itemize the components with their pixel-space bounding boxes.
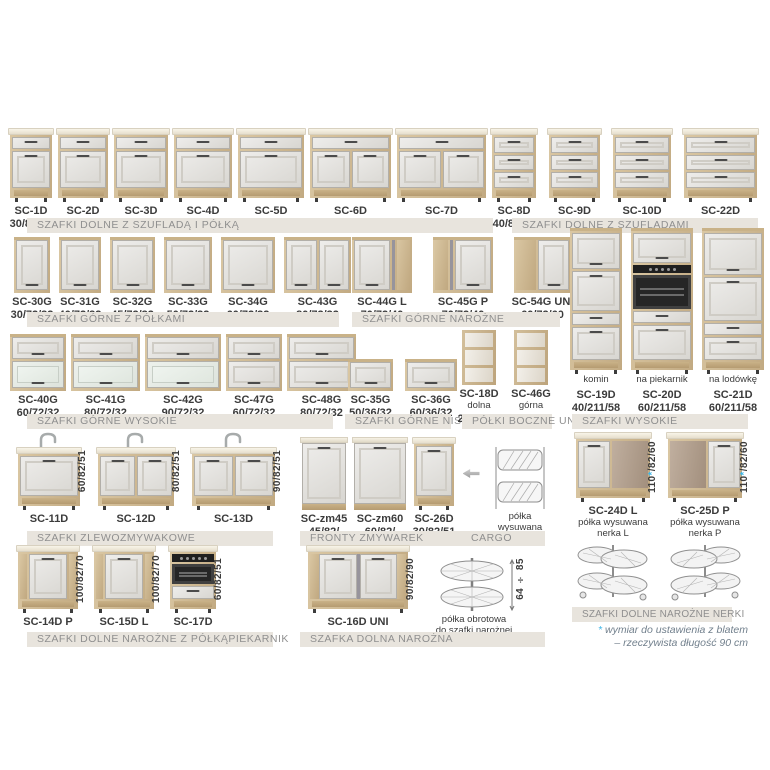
product-code: SC-14D P [23, 616, 73, 628]
product-drawing-area [174, 128, 232, 202]
product-code: SC-35G [351, 394, 391, 406]
handle [727, 327, 740, 329]
cabinet-drawing [164, 237, 212, 293]
countertop [112, 128, 170, 135]
handle [508, 176, 521, 178]
handle [74, 284, 87, 286]
handle [590, 317, 603, 319]
countertop [308, 128, 393, 135]
product-code: SC-5D [254, 205, 287, 217]
handle [656, 329, 669, 331]
kidney-shelf-wrap [575, 545, 651, 606]
oven-window [633, 275, 691, 309]
product-item: SC-1D30/82/51 [10, 128, 52, 230]
handle [636, 159, 649, 161]
cabinet-legs [18, 506, 80, 510]
product-drawing-area [221, 237, 275, 293]
countertop [96, 447, 176, 454]
product-drawing-area: 80/82/51 [92, 432, 180, 510]
countertop [666, 432, 744, 439]
category-band: PÓŁKI BOCZNE UNI [462, 414, 552, 429]
handle [324, 155, 337, 157]
handle [42, 558, 55, 560]
product-item: SC-7D90/82/51 [397, 128, 486, 230]
product-drawing-area [114, 128, 168, 202]
product-drawing-area [238, 128, 304, 202]
vertical-dimension-label: 110*/82/60 [647, 441, 658, 493]
cabinet-legs [174, 198, 232, 202]
section-g10: SC-zm4545/82/SC-zm6060/82/SC-26D30/82/51… [302, 437, 552, 538]
product-drawing-area [287, 334, 356, 391]
product-drawing-area: 90/82/90 [302, 545, 414, 613]
handle [43, 460, 56, 462]
product-drawing-area [310, 128, 391, 202]
product-code: SC-22D [701, 205, 740, 217]
product-drawing-area [684, 128, 757, 202]
cabinet-drawing [613, 128, 671, 202]
product-item: SC-8D40/82/51 [492, 128, 536, 230]
product-code: SC-10D [622, 205, 661, 217]
countertop [395, 128, 488, 135]
kidney-shelf-drawing [667, 545, 743, 601]
category-band-label: SZAFKI DOLNE NAROŻNE Z PÓŁKĄ [37, 632, 228, 647]
product-item: kominSC-19D40/211/58 [570, 228, 622, 414]
section-g11: 110*/82/60SC-24D Lpółka wysuwana nerka L… [570, 432, 748, 606]
product-drawing-area [631, 228, 693, 374]
product-item: 60/82/51SC-11D [12, 432, 86, 525]
handle [590, 331, 603, 333]
handle [25, 155, 38, 157]
corner-cabinet-drawing [18, 545, 78, 613]
handle [727, 281, 740, 283]
product-drawing-area: 110*/82/60 [662, 432, 748, 502]
section-g9: 60/82/51SC-11D80/82/51SC-12D90/82/51SC-1… [12, 432, 281, 525]
product-code: SC-17D [173, 616, 212, 628]
product-drawing-area [226, 334, 282, 391]
product-code: SC-1D [14, 205, 47, 217]
cabinet-drawing [10, 334, 66, 391]
category-band: SZAFKI DOLNE NAROŻNE NERKI [572, 607, 732, 622]
product-code: SC-20D [642, 389, 681, 401]
product-drawing-area [164, 237, 212, 293]
tall-oven-cabinet-drawing [631, 228, 693, 374]
vertical-dimension-label: 80/82/51 [171, 450, 182, 492]
section-g8: kominSC-19D40/211/58na piekarnikSC-20D60… [570, 228, 764, 414]
cabinet-legs [192, 506, 275, 510]
kidney-shelf-wrap [667, 545, 743, 606]
corner-cabinet-drawing [94, 545, 154, 613]
category-band: SZAFKI GÓRNE NAROŻNE [352, 312, 560, 327]
product-drawing-area [14, 237, 50, 293]
product-drawing-area [492, 128, 536, 202]
product-drawing-area [354, 437, 406, 510]
product-drawing-area [58, 128, 108, 202]
product-drawing-area [488, 437, 552, 510]
asterisk-marker: * [598, 624, 602, 636]
product-drawing-area [10, 128, 52, 202]
category-band: SZAFKA DOLNA NAROŻNA [300, 632, 545, 647]
vertical-dimension-label: 100/82/70 [151, 555, 162, 603]
product-sublabel: na piekarnik [636, 375, 687, 386]
section-g12: 100/82/70SC-14D P100/82/70SC-15D L60/82/… [12, 545, 222, 628]
product-item: SC-46Ggórna20/72/30 [514, 330, 548, 425]
cabinet-legs [702, 370, 764, 374]
countertop [92, 545, 156, 552]
product-code: SC-54G UNI [512, 296, 574, 308]
product-sublabel: komin [583, 375, 608, 386]
countertop [574, 432, 652, 439]
product-code: SC-13D [214, 513, 253, 525]
handle [135, 141, 148, 143]
cabinet-legs [684, 198, 757, 202]
handle [467, 284, 480, 286]
handle [242, 284, 255, 286]
product-code: SC-19D [576, 389, 615, 401]
handle [248, 353, 261, 355]
sink-cabinet-drawing [18, 432, 80, 510]
countertop [16, 545, 80, 552]
handle [636, 176, 649, 178]
product-code: SC-25D P [680, 505, 730, 517]
product-code: SC-44G L [357, 296, 407, 308]
product-code: SC-30G [12, 296, 52, 308]
section-g7: SC-18Ddolna20/72/56SC-46Ggórna20/72/30 [462, 330, 548, 425]
handle [457, 155, 470, 157]
product-code: SC-zm60 [357, 513, 403, 525]
handle [32, 353, 45, 355]
cabinet-legs [98, 506, 174, 510]
cabinet-drawing [397, 128, 486, 202]
sink-cabinet-drawing [192, 432, 275, 510]
category-band-label: CARGO [471, 531, 512, 546]
catalog-page: SC-1D30/82/51SC-2D40/82/51SC-3D45/82/51S… [0, 0, 770, 770]
dishwasher-front-drawing [354, 437, 406, 510]
cabinet-drawing [348, 359, 393, 391]
countertop [611, 128, 673, 135]
section-g2: SC-8D40/82/51SC-9D50/82/51SC-10D60/82/51… [492, 128, 757, 230]
product-item: SC-41G80/72/32 [71, 334, 140, 419]
arrow-left-icon [463, 469, 480, 478]
product-code: SC-16D UNI [327, 616, 388, 628]
handle [656, 257, 669, 259]
category-band-label: PÓŁKI BOCZNE UNI [472, 414, 579, 429]
product-item: 100/82/70SC-15D L [88, 545, 160, 628]
blind-panel [612, 441, 648, 488]
product-drawing-area [613, 128, 671, 202]
cabinet-drawing [58, 128, 108, 202]
handle [568, 159, 581, 161]
cabinet-legs [492, 198, 536, 202]
handle [182, 284, 195, 286]
handle [588, 445, 601, 447]
countertop [547, 128, 602, 135]
product-item: SC-45G P70/72/40 [433, 237, 493, 321]
product-sublabel: na lodówkę [709, 375, 757, 386]
handle [727, 341, 740, 343]
handle [265, 155, 278, 157]
product-code: SC-12D [116, 513, 155, 525]
product-item: SC-48G80/72/32 [287, 334, 356, 419]
handle [295, 284, 308, 286]
category-band: SZAFKI GÓRNE WYSOKIE [27, 414, 333, 429]
product-item: na lodówkęSC-21D60/211/58 [702, 228, 764, 414]
product-drawing-area [414, 437, 454, 510]
product-item: 110*/82/60SC-24D Lpółka wysuwana nerka L [570, 432, 656, 606]
cabinet-drawing [405, 359, 457, 391]
handle [413, 155, 426, 157]
countertop [56, 128, 110, 135]
carousel-shelf-drawing [432, 557, 516, 613]
cabinet-drawing [71, 334, 140, 391]
product-item: SC-3D45/82/51 [114, 128, 168, 230]
product-code: SC-31G [60, 296, 100, 308]
product-item: SC-35G50/36/32 [348, 334, 393, 419]
handle [197, 141, 210, 143]
product-item: 90/82/90SC-16D UNI [302, 545, 414, 628]
product-item [462, 437, 480, 510]
product-item: SC-44G L70/72/40 [352, 237, 412, 321]
product-code: SC-45G P [438, 296, 488, 308]
product-code: SC-7D [425, 205, 458, 217]
cabinet-legs [570, 370, 622, 374]
product-drawing-area: 100/82/70 [12, 545, 84, 613]
category-band-label: SZAFKI GÓRNE NAROŻNE [362, 312, 504, 327]
product-drawing-area [352, 237, 412, 293]
product-item: SC-47G60/72/32 [226, 334, 282, 419]
handle [714, 176, 727, 178]
product-drawing-area: 64 ÷ 85 [424, 545, 524, 613]
cabinet-legs [10, 198, 52, 202]
product-item: SC-42G90/72/32 [145, 334, 221, 419]
handle [656, 315, 669, 317]
product-code: SC-42G [163, 394, 203, 406]
product-item: SC-33G50/72/32 [164, 237, 212, 321]
product-sublabel: półka wysuwana nerka P [662, 518, 748, 539]
section-g6: SC-35G50/36/32SC-36G60/36/32 [348, 334, 457, 419]
product-sublabel: dolna [467, 401, 490, 412]
product-item: SC-6D80/82/51 [310, 128, 391, 230]
cabinet-drawing [14, 237, 50, 293]
cabinet-legs [18, 609, 78, 613]
faucet-icon [18, 432, 80, 448]
category-band-label: SZAFKI WYSOKIE [582, 414, 678, 429]
footnote-text: – rzeczywista długość 90 cm [614, 637, 748, 649]
handle [714, 159, 727, 161]
cabinet-legs [549, 198, 600, 202]
handle [187, 590, 200, 592]
section-g13: 90/82/90SC-16D UNI64 ÷ 85półka obrotowad… [302, 545, 524, 636]
tall-cabinet-drawing [570, 228, 622, 374]
product-code: SC-26D [414, 513, 453, 525]
cabinet-drawing [514, 237, 571, 293]
product-drawing-area [514, 330, 548, 385]
cargo-cabinet-drawing [414, 437, 454, 510]
product-code: SC-32G [113, 296, 153, 308]
handle [126, 284, 139, 286]
cabinet-legs [397, 198, 486, 202]
handle [327, 284, 340, 286]
product-code: SC-34G [228, 296, 268, 308]
handle [77, 155, 90, 157]
oven-controls [633, 265, 691, 273]
handle [374, 447, 387, 449]
category-band: FRONTY ZMYWAREKCARGO [300, 531, 545, 546]
product-code: SC-11D [30, 513, 69, 525]
product-item: 90/82/51SC-13D [186, 432, 281, 525]
cabinet-drawing [221, 237, 275, 293]
cabinet-drawing [287, 334, 356, 391]
handle [331, 558, 344, 560]
product-item: 60/82/51SC-17D [164, 545, 222, 628]
product-drawing-area [10, 334, 66, 391]
sink-cabinet-drawing [98, 432, 174, 510]
product-item: SC-31G40/72/32 [59, 237, 101, 321]
category-band: SZAFKI GÓRNE Z PÓŁKAMI [27, 312, 339, 327]
handle [568, 176, 581, 178]
product-code: SC-33G [168, 296, 208, 308]
vertical-dimension-label: 110*/82/60 [739, 441, 750, 493]
handle [318, 447, 331, 449]
faucet-icon [98, 432, 174, 448]
product-dimensions: 40/211/58 [572, 402, 620, 414]
product-drawing-area: 60/82/51 [12, 432, 86, 510]
section-g5: SC-40G60/72/32SC-41G80/72/32SC-42G90/72/… [10, 334, 356, 419]
section-g1: SC-1D30/82/51SC-2D40/82/51SC-3D45/82/51S… [10, 128, 486, 230]
product-drawing-area: 100/82/70 [88, 545, 160, 613]
handle [135, 155, 148, 157]
handle [590, 275, 603, 277]
product-code: SC-41G [86, 394, 126, 406]
cabinet-legs [414, 506, 454, 510]
handle [265, 141, 278, 143]
category-band: SZAFKI DOLNE Z SZUFLADĄ I PÓŁKĄ [27, 218, 493, 233]
side-shelf-drawing [462, 330, 496, 385]
oven-controls [172, 554, 214, 562]
vertical-dimension-label: 90/82/90 [405, 558, 416, 600]
product-code: SC-24D L [589, 505, 638, 517]
oven-window [172, 564, 214, 584]
product-item: SC-10D60/82/51 [613, 128, 671, 230]
product-drawing-area [348, 334, 393, 391]
product-drawing-area [145, 334, 221, 391]
product-code: SC-43G [298, 296, 338, 308]
product-item: SC-9D50/82/51 [549, 128, 600, 230]
category-band: SZAFKI ZLEWOZMYWAKOWE [27, 531, 273, 546]
vertical-dimension-label: 60/82/51 [213, 558, 224, 600]
product-code: SC-48G [302, 394, 342, 406]
cabinet-legs [114, 198, 168, 202]
category-band-label: SZAFKI ZLEWOZMYWAKOWE [37, 531, 195, 546]
handle [25, 141, 38, 143]
handle [372, 558, 385, 560]
handle [508, 159, 521, 161]
cabinet-drawing [174, 128, 232, 202]
handle [727, 269, 740, 271]
product-drawing-area [549, 128, 600, 202]
product-code: SC-36G [411, 394, 451, 406]
handle [425, 382, 438, 384]
handle [248, 382, 261, 384]
footnote-line: * wymiar do ustawienia z blatem [558, 624, 748, 637]
category-band-label: FRONTY ZMYWAREK [310, 531, 424, 546]
product-drawing-area: 110*/82/60 [570, 432, 656, 502]
product-dimensions: 60/211/58 [638, 402, 686, 414]
product-drawing-area [702, 228, 764, 374]
handle [99, 353, 112, 355]
product-drawing-area [405, 334, 457, 391]
handle [207, 460, 220, 462]
kidney-shelf-drawing [575, 545, 651, 601]
corner-cabinet-drawing [308, 545, 408, 613]
section-g4: SC-44G L70/72/40SC-45G P70/72/40SC-54G U… [352, 237, 571, 321]
product-code: SC-40G [18, 394, 58, 406]
countertop [682, 128, 759, 135]
handle [366, 284, 379, 286]
handle [32, 382, 45, 384]
dishwasher-front-drawing [302, 437, 346, 510]
handle [590, 263, 603, 265]
cabinet-legs [308, 609, 408, 613]
product-sublabel: górna [519, 401, 543, 412]
handle [247, 460, 260, 462]
product-item: 100/82/70SC-14D P [12, 545, 84, 628]
product-drawing-area [570, 228, 622, 374]
product-item: na piekarnikSC-20D60/211/58 [631, 228, 693, 414]
category-band-label: PIEKARNIK [228, 632, 289, 647]
category-band-label: SZAFKI GÓRNE Z PÓŁKAMI [37, 312, 185, 327]
product-drawing-area: 90/82/51 [186, 432, 281, 510]
product-item: 80/82/51SC-12D [92, 432, 180, 525]
countertop [172, 128, 234, 135]
handle [111, 460, 124, 462]
tall-fridge-cabinet-drawing [702, 228, 764, 374]
product-drawing-area: 60/82/51 [164, 545, 222, 613]
product-code: SC-9D [558, 205, 591, 217]
product-code: SC-15D L [100, 616, 149, 628]
product-item: SC-34G60/72/32 [221, 237, 275, 321]
asterisk-marker: * [647, 471, 658, 475]
product-item: SC-40G60/72/32 [10, 334, 66, 419]
product-drawing-area [110, 237, 155, 293]
cabinet-drawing [433, 237, 493, 293]
footnote-text: wymiar do ustawienia z blatem [605, 624, 748, 636]
countertop [236, 128, 306, 135]
category-band: SZAFKI DOLNE NAROŻNE Z PÓŁKĄPIEKARNIK [27, 632, 273, 647]
handle [364, 155, 377, 157]
handle [177, 382, 190, 384]
handle [568, 141, 581, 143]
handle [26, 284, 39, 286]
handle [197, 155, 210, 157]
countertop [412, 437, 456, 444]
side-shelf-drawing [514, 330, 548, 385]
product-drawing-area [514, 237, 571, 293]
cabinet-drawing [145, 334, 221, 391]
dimension-value: /82/60 [647, 441, 658, 471]
asterisk-marker: * [739, 471, 750, 475]
handle [428, 450, 441, 452]
product-item: SC-zm6060/82/ [354, 437, 406, 538]
cabinet-drawing [492, 128, 536, 202]
dimension-value: /82/60 [739, 441, 750, 471]
handle [508, 141, 521, 143]
cabinet-legs [170, 609, 216, 613]
handle [315, 353, 328, 355]
category-band-label: SZAFKI DOLNE NAROŻNE NERKI [582, 607, 744, 622]
product-item: półka wysuwana [488, 437, 552, 533]
product-drawing-area [302, 437, 346, 510]
product-code: SC-46G [511, 388, 551, 400]
